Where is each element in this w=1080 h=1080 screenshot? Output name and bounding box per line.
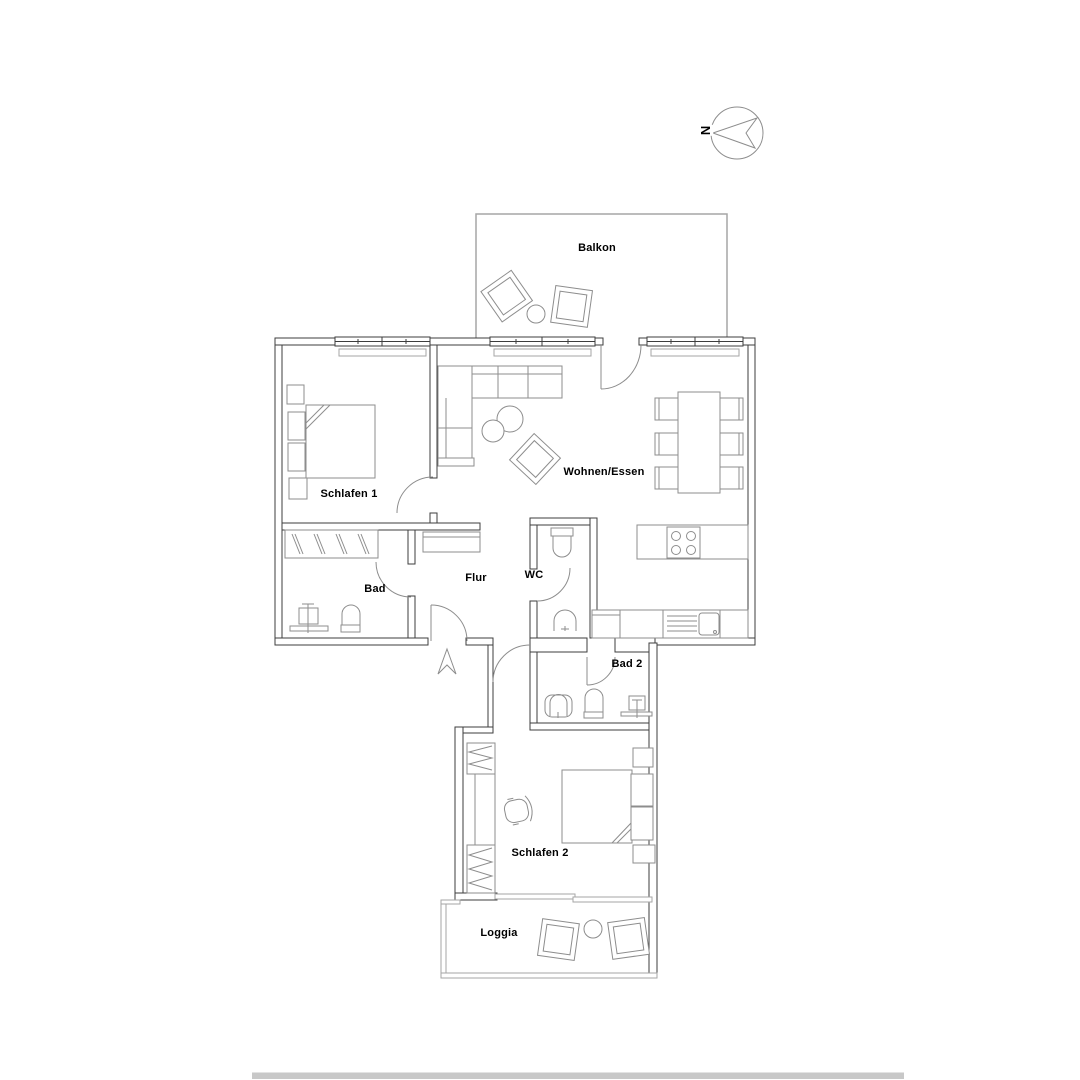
floorplan-canvas: Balkon Schlafen 1 Wohnen/Essen Bad Flur … [0,0,1080,1080]
wardrobe [285,530,378,558]
sink-icon [545,695,572,719]
compass-north-label: N [698,125,713,136]
nightstand [631,748,655,863]
horizontal-scrollbar[interactable] [252,1072,904,1079]
balcony-chair-icon [481,270,533,322]
toilet-icon [341,605,360,632]
balcony-chair-icon [551,286,593,328]
stove-icon [667,527,700,558]
window [647,337,743,356]
room-label-schlafen1: Schlafen 1 [320,488,377,500]
kitchen-island [637,525,748,559]
bed [562,770,632,843]
room-label-schlafen2: Schlafen 2 [511,847,568,859]
room-label-balkon: Balkon [578,242,616,254]
sink-icon [554,610,576,631]
north-arrow-icon [711,107,763,159]
window [335,337,430,356]
desk-chair [503,795,535,826]
room-label-loggia: Loggia [480,927,517,939]
toilet-icon [551,528,573,557]
room-label-wohnen-essen: Wohnen/Essen [563,466,644,478]
armchair [510,434,561,485]
room-label-wc: WC [525,569,544,581]
loggia-table-icon [584,920,602,938]
balcony-table-icon [527,305,545,323]
window [490,337,595,356]
hall-closet [423,532,480,552]
bed [306,405,375,478]
loggia-chair-icon [538,919,580,961]
wardrobe [467,743,495,893]
washbasin-icon [621,696,652,718]
room-label-bad2: Bad 2 [612,658,643,670]
kitchen-counter [592,610,748,638]
washbasin-icon [290,604,328,633]
room-label-bad: Bad [364,583,385,595]
entrance-arrow-icon [438,649,456,674]
sliding-glass-door [495,894,652,902]
floorplan-svg [0,0,1080,1080]
coffee-table [482,406,523,442]
nightstand [287,385,307,499]
dining-table [678,392,720,493]
room-label-flur: Flur [465,572,487,584]
toilet-icon [584,689,603,718]
loggia-chair-icon [608,918,650,960]
